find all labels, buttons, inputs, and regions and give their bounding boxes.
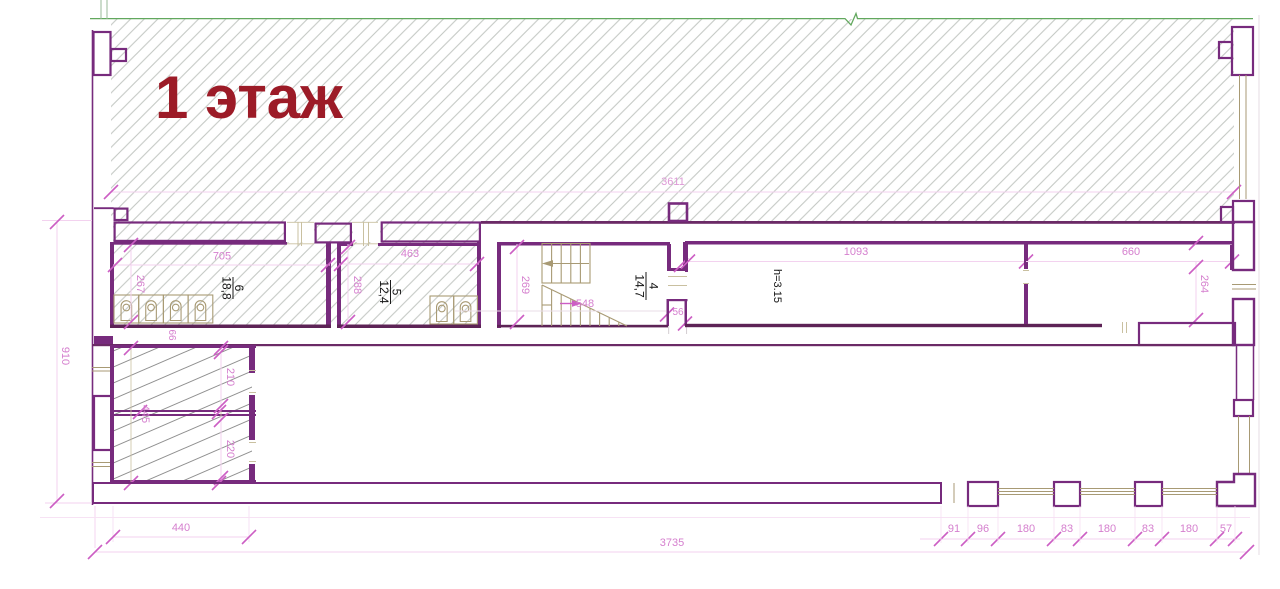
svg-text:910: 910 [59, 347, 71, 365]
svg-text:91: 91 [948, 523, 960, 535]
svg-text:445: 445 [139, 405, 151, 423]
svg-text:83: 83 [1142, 523, 1154, 535]
svg-text:705: 705 [213, 251, 231, 263]
svg-text:660: 660 [1122, 246, 1140, 258]
svg-text:18,8: 18,8 [220, 276, 234, 300]
svg-text:220: 220 [224, 440, 236, 458]
svg-text:264: 264 [1198, 275, 1210, 293]
svg-text:269: 269 [519, 276, 531, 294]
svg-text:180: 180 [1017, 523, 1035, 535]
svg-text:463: 463 [401, 248, 419, 260]
svg-text:3611: 3611 [661, 176, 685, 188]
svg-text:4: 4 [647, 283, 661, 290]
svg-text:57: 57 [1220, 523, 1232, 535]
svg-text:66: 66 [166, 329, 177, 341]
svg-text:548: 548 [576, 298, 594, 310]
svg-text:83: 83 [1061, 523, 1073, 535]
svg-text:288: 288 [351, 276, 363, 294]
svg-text:h=3.15: h=3.15 [771, 269, 783, 303]
svg-text:96: 96 [977, 523, 989, 535]
svg-text:56: 56 [672, 307, 684, 318]
svg-text:3735: 3735 [660, 537, 684, 549]
svg-text:440: 440 [172, 522, 190, 534]
svg-text:180: 180 [1098, 523, 1116, 535]
svg-text:1 этаж: 1 этаж [155, 64, 344, 131]
svg-text:210: 210 [224, 368, 236, 386]
svg-text:12,4: 12,4 [377, 280, 391, 304]
svg-text:14,7: 14,7 [633, 274, 647, 298]
svg-text:180: 180 [1180, 523, 1198, 535]
svg-text:267: 267 [134, 275, 146, 293]
svg-text:1093: 1093 [844, 246, 868, 258]
